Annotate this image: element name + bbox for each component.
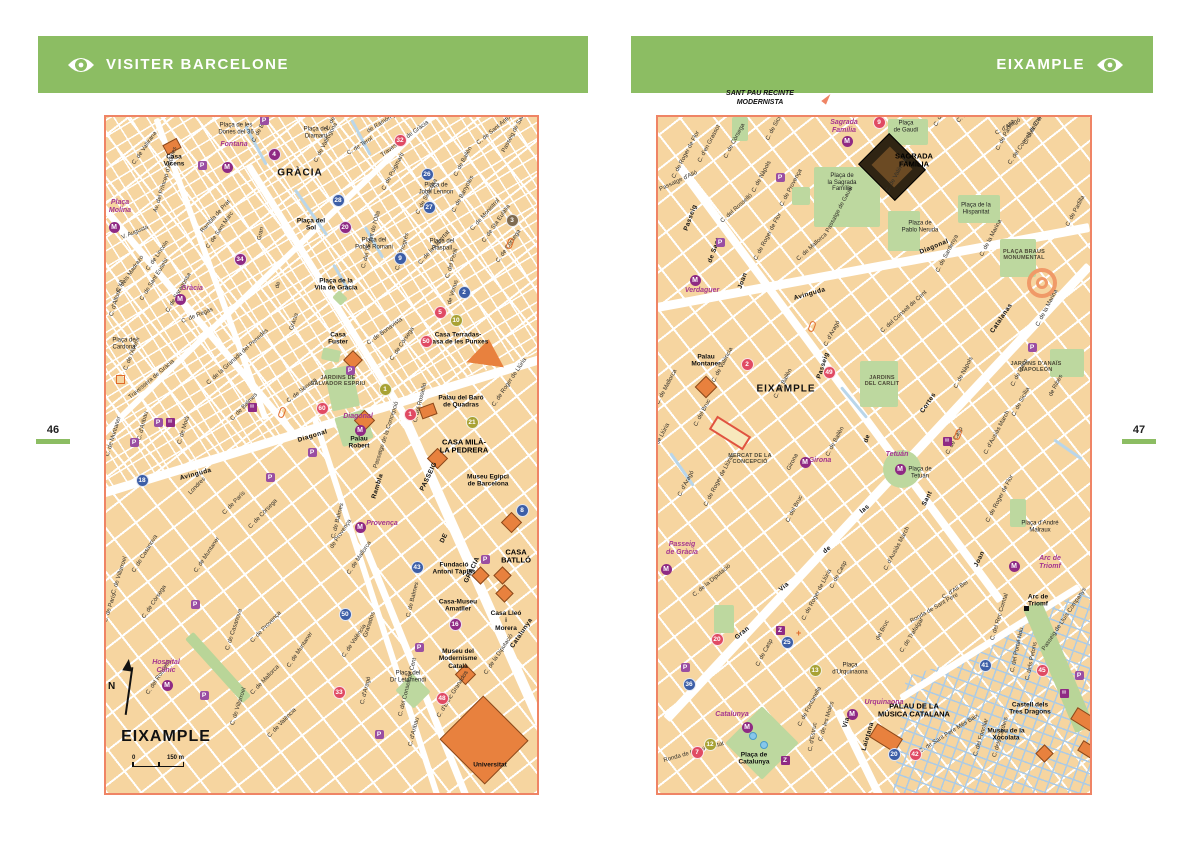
annotation-arrow-icon <box>821 92 833 104</box>
square-label: Plaça de John Lennon <box>419 182 454 195</box>
poi-label: Castell dels Tres Dragons <box>1009 702 1051 717</box>
parking-icon: P <box>1075 671 1084 680</box>
scale-rule <box>132 762 184 767</box>
poi-label: Museu Egipci de Barcelona <box>467 474 509 489</box>
parking-icon: P <box>260 116 269 125</box>
guidebook-spread: VISITER BARCELONE EIXAMPLE 46 47 SANT PA… <box>0 0 1191 842</box>
poi-label: Plaça de Catalunya <box>738 752 769 767</box>
scale-values: 0150 m <box>132 755 184 761</box>
sight-number-badge: 9 <box>394 252 407 265</box>
header-left: VISITER BARCELONE <box>38 36 588 93</box>
page-number-left: 46 <box>36 424 70 444</box>
sight-number-badge: 45 <box>1036 664 1049 677</box>
page-number-right-value: 47 <box>1122 424 1156 436</box>
compass-north-label: N <box>108 681 115 692</box>
sight-number-badge: 21 <box>466 416 479 429</box>
sight-number-badge: 20 <box>711 633 724 646</box>
poi-label-major: CASA BATLLÓ <box>501 549 531 566</box>
tick <box>132 762 134 766</box>
square-label: Plaça del Poble Romani <box>355 237 393 250</box>
poi-label: Arc de Triomf <box>1028 594 1048 609</box>
poi-label: Museu del Modernisme Català <box>439 648 477 670</box>
sight-number-badge: 32 <box>394 134 407 147</box>
sight-number-badge: 36 <box>683 678 696 691</box>
map-scale-bar: 0150 m <box>132 755 184 767</box>
parking-icon: P <box>776 173 785 182</box>
sight-number-badge: 2 <box>458 286 471 299</box>
square-label: Plaça del Raspall <box>430 238 455 251</box>
park <box>714 605 734 633</box>
sight-number-badge: 18 <box>136 474 149 487</box>
parking-icon: P <box>200 691 209 700</box>
metro-icon: M <box>109 222 120 233</box>
sight-number-badge: 42 <box>909 748 922 761</box>
sight-number-badge: 50 <box>420 335 433 348</box>
metro-icon: M <box>742 722 753 733</box>
metro-icon: M <box>842 136 853 147</box>
sight-number-badge: 13 <box>809 664 822 677</box>
sight-number-badge: 4 <box>268 148 281 161</box>
metro-station-label: Hospital Clínic <box>152 659 180 675</box>
poi-label: Casa Lleó i Morera <box>491 610 522 632</box>
header-left-title: VISITER BARCELONE <box>106 56 289 73</box>
poi-label: Casa Fuster <box>328 332 348 347</box>
post-office-icon: ✉ <box>166 418 175 427</box>
sight-number-badge: 50 <box>339 608 352 621</box>
poi-label: Casa Vicens <box>164 154 185 169</box>
metro-station-label: Tetuán <box>886 451 909 459</box>
post-office-icon: ✉ <box>943 437 952 446</box>
sight-number-badge: 12 <box>704 738 717 751</box>
metro-icon: M <box>661 564 672 575</box>
sight-number-badge: 34 <box>234 253 247 266</box>
parking-icon: P <box>346 366 355 375</box>
sight-number-badge: 26 <box>421 168 434 181</box>
metro-icon: M <box>1009 561 1020 572</box>
square-label: Plaça de la Sagrada Família <box>827 173 856 193</box>
poi-label: Palau Robert <box>349 436 370 451</box>
district-label-large: EIXAMPLE <box>121 728 211 746</box>
sight-number-badge: 43 <box>411 561 424 574</box>
header-right: EIXAMPLE <box>631 36 1153 93</box>
compass-north-arrow: N <box>114 659 144 719</box>
eye-icon <box>66 55 96 75</box>
metro-icon: M <box>800 457 811 468</box>
sight-number-badge: 48 <box>436 692 449 705</box>
poi-label: Plaça de la Vila de Gràcia <box>315 278 358 293</box>
poi-label: Palau del Baró de Quadras <box>438 395 483 410</box>
parking-icon: P <box>198 161 207 170</box>
sight-number-badge: 16 <box>449 618 462 631</box>
square-label: Plaça del Diamant <box>304 126 329 139</box>
parking-icon: P <box>191 600 200 609</box>
area-label: JARDINS DEL CARLIT <box>865 375 900 387</box>
metro-station-label: Arc de Triomf <box>1039 555 1061 571</box>
compass-line <box>125 667 133 715</box>
metro-icon: M <box>162 680 173 691</box>
map-annotation-sant-pau: SANT PAU RECINTE MODERNISTA <box>700 90 820 108</box>
area-label: JARDINS DE SALVADOR ESPRIU <box>310 375 365 387</box>
poi-label: Palau Montaner <box>691 354 720 369</box>
page-number-underline <box>1122 439 1156 444</box>
poi-label: Universitat <box>473 761 507 768</box>
sight-number-badge: 5 <box>434 306 447 319</box>
compass-arrowhead <box>122 658 134 671</box>
metro-icon: M <box>847 709 858 720</box>
fountain-icon <box>749 732 757 740</box>
sight-number-badge: 49 <box>823 366 836 379</box>
sight-number-badge: 1 <box>404 408 417 421</box>
map-eixample-east: C. d'en GrassotC. de Roger de FlorC. de … <box>656 115 1092 795</box>
square-label: Plaça d'Urquinaona <box>832 662 868 675</box>
sight-number-badge: 2 <box>741 358 754 371</box>
parking-icon: P <box>266 473 275 482</box>
landmark-icon: Z <box>781 756 790 765</box>
square-label: Plaça de Tetuán <box>908 466 931 479</box>
square-label: Plaça de les Dones del 36 <box>218 122 253 135</box>
square-label: Plaça de Gaudí <box>894 120 919 133</box>
metro-station-label: Verdaguer <box>685 287 719 295</box>
street-label: de <box>275 281 283 289</box>
square-label: Plaça del Dr Letamendi <box>390 670 426 683</box>
area-label: JARDINS D'ANAÏS NAPOLEÓN <box>1010 361 1061 373</box>
sight-number-badge: 25 <box>781 636 794 649</box>
metro-station-label: Girona <box>809 457 832 465</box>
park <box>792 187 810 205</box>
metro-icon: M <box>175 294 186 305</box>
page-number-left-value: 46 <box>36 424 70 436</box>
page-number-underline <box>36 439 70 444</box>
metro-icon: M <box>222 162 233 173</box>
square-label: Plaça de la Hispanitat <box>961 202 991 215</box>
header-right-title: EIXAMPLE <box>996 56 1085 73</box>
poi-label-major: SAGRADA FAMILIA <box>895 153 933 170</box>
square-label: Plaça d'André Malraux <box>1021 520 1058 533</box>
landmark-icon: Z <box>776 626 785 635</box>
sight-number-badge: 41 <box>979 659 992 672</box>
poi-label: Museu de la Xocolata <box>987 728 1024 743</box>
parking-icon: P <box>1028 343 1037 352</box>
metro-icon: M <box>895 464 906 475</box>
metro-station-label: Fontana <box>220 141 247 149</box>
metro-station-label: Catalunya <box>715 711 748 719</box>
parking-icon: P <box>130 438 139 447</box>
post-office-icon: ✉ <box>1060 689 1069 698</box>
metro-station-label: Passeig de Gràcia <box>666 541 698 557</box>
sight-number-badge: 1 <box>379 383 392 396</box>
page-number-right: 47 <box>1122 424 1156 444</box>
poi-label-major: CASA MILÀ- LA PEDRERA <box>440 439 488 456</box>
metro-station-label: Urquinaona <box>865 699 904 707</box>
scale-distance: 150 m <box>167 755 184 761</box>
post-office-icon: ✉ <box>248 403 257 412</box>
sight-number-badge: 28 <box>332 194 345 207</box>
parking-icon: P <box>716 238 725 247</box>
sight-number-badge: 7 <box>691 746 704 759</box>
poi-label: Casa Terradas- Casa de les Punxes <box>428 332 489 347</box>
parking-icon: P <box>308 448 317 457</box>
metro-station-label: Diagonal <box>343 413 373 421</box>
map-gracia-eixample-west: C. de ValliranaAv. del Príncep d'Astúrie… <box>104 115 539 795</box>
sight-number-badge: 8 <box>516 504 529 517</box>
sight-number-badge: 9 <box>873 116 886 129</box>
metro-station-label: Gràcia <box>181 285 203 293</box>
metro-station-label: Provença <box>366 520 398 528</box>
square-label: Plaça de Cardona <box>112 337 135 350</box>
eye-icon <box>1095 55 1125 75</box>
parking-icon: P <box>154 418 163 427</box>
poi-label: Fundació Antoni Tàpies <box>433 562 476 577</box>
sight-icon <box>116 375 125 384</box>
district-label: EIXAMPLE <box>756 383 815 394</box>
sight-number-badge: 27 <box>423 201 436 214</box>
church-icon: + <box>796 628 801 638</box>
metro-icon: M <box>690 275 701 286</box>
fountain-icon <box>760 741 768 749</box>
sight-number-badge: 33 <box>333 686 346 699</box>
scale-zero: 0 <box>132 755 135 761</box>
metro-station-label: Sagrada Família <box>830 119 858 135</box>
parking-icon: P <box>481 555 490 564</box>
sight-number-badge: 60 <box>316 402 329 415</box>
parking-icon: P <box>415 643 424 652</box>
poi-label: Plaça del Sol <box>297 218 325 233</box>
sight-number-badge: 20 <box>339 221 352 234</box>
parking-icon: P <box>681 663 690 672</box>
poi-label: Casa-Museu Amatller <box>439 599 477 614</box>
district-label: GRÀCIA <box>277 167 322 178</box>
area-label: MERCAT DE LA CONCEPCIÓ <box>728 453 772 465</box>
metro-icon: M <box>355 522 366 533</box>
metro-icon: M <box>355 425 366 436</box>
area-label: PLAÇA BRAUS MONUMENTAL <box>1003 249 1045 261</box>
square-label: Plaza de Pablo Neruda <box>902 220 939 233</box>
sight-number-badge: 3 <box>506 214 519 227</box>
sight-number-badge: 20 <box>888 748 901 761</box>
sight-number-badge: 10 <box>450 314 463 327</box>
metro-station-label: Plaça Molina <box>109 199 131 215</box>
parking-icon: P <box>375 730 384 739</box>
